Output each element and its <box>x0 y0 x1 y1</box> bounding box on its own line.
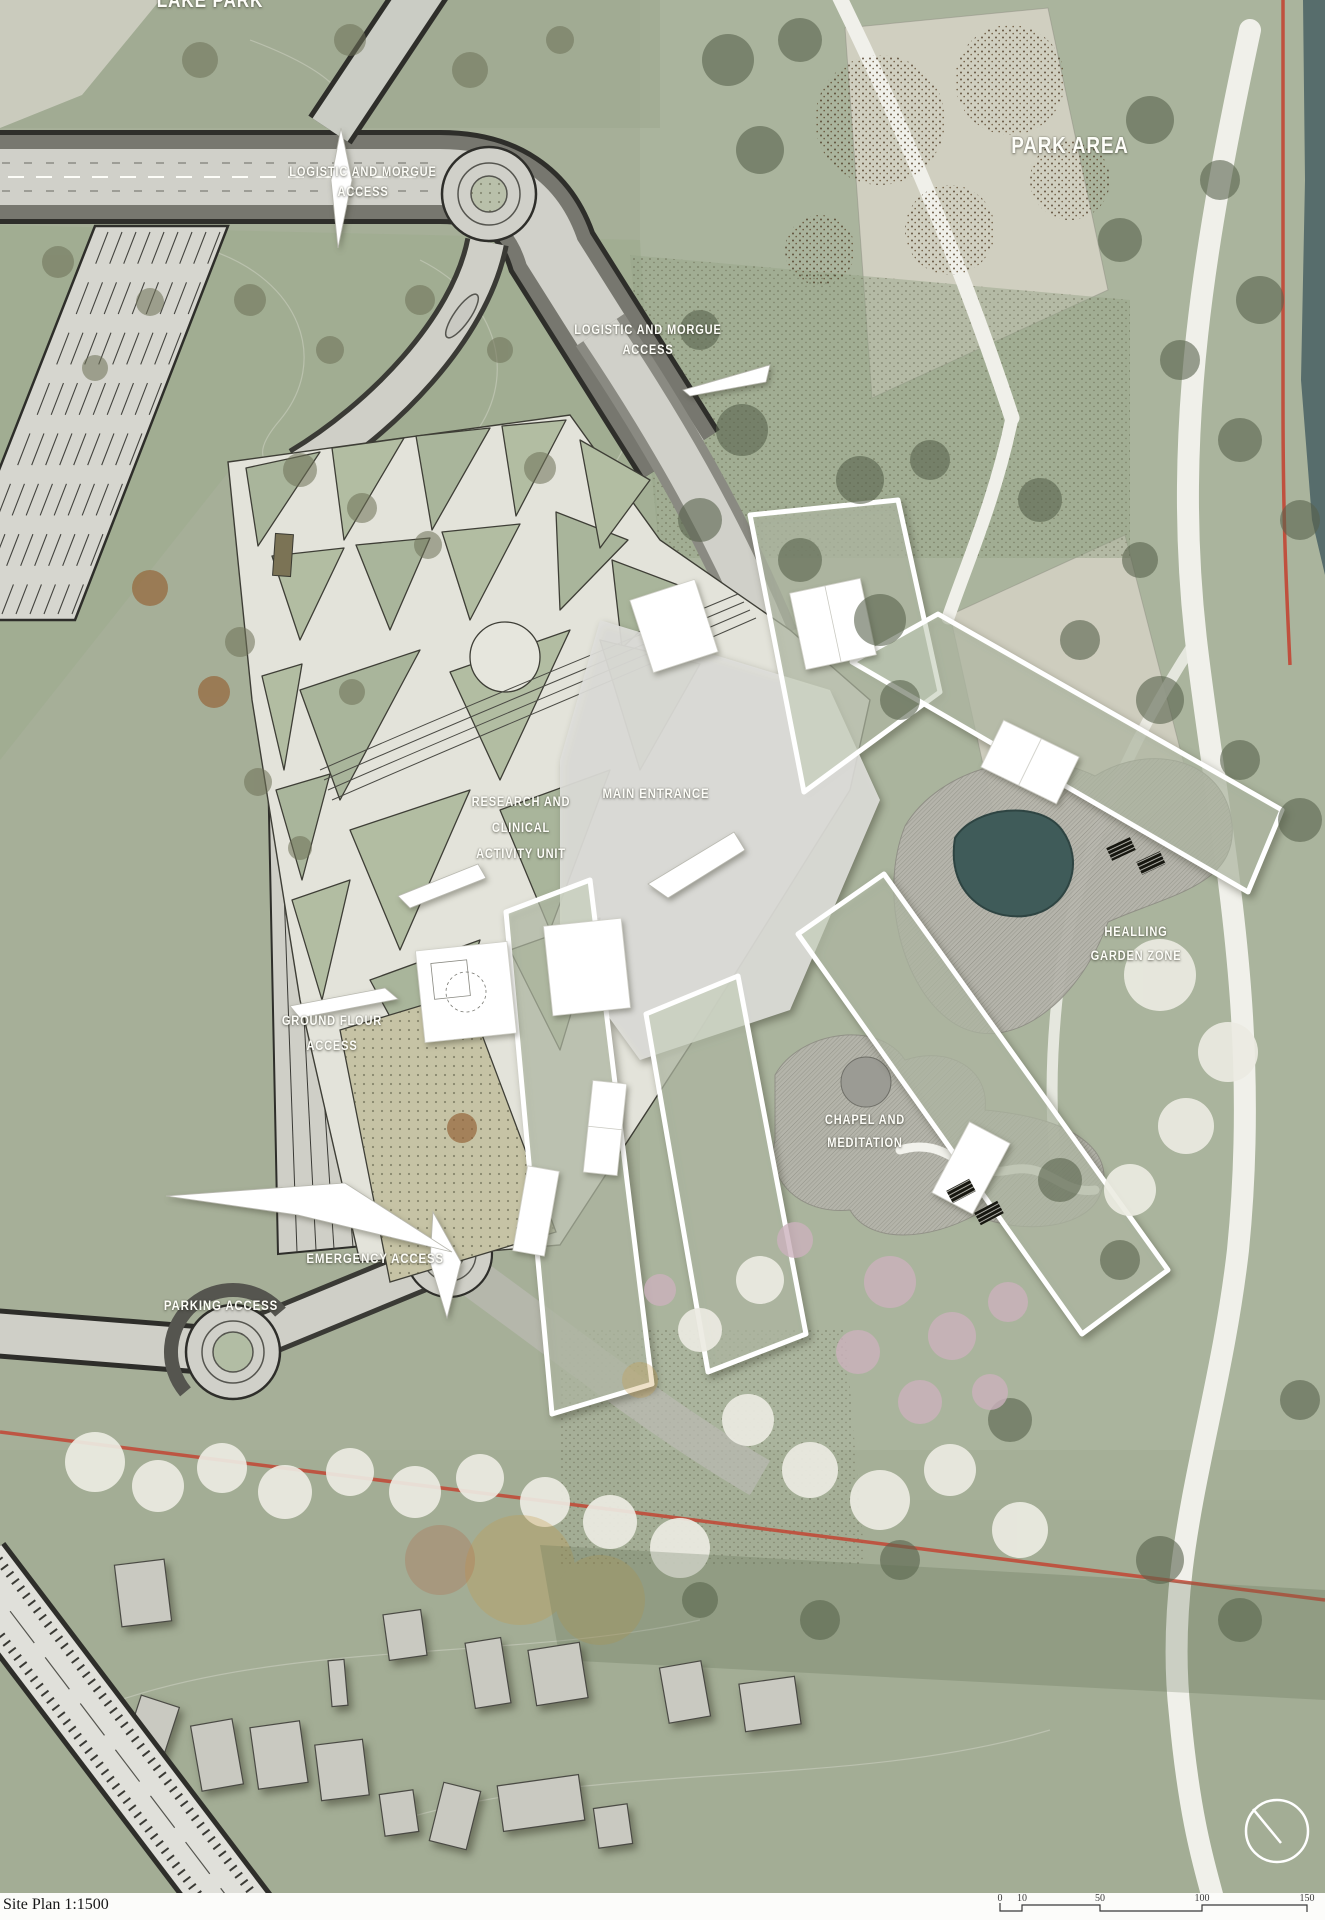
scale-tick-10: 10 <box>1017 1893 1027 1904</box>
label-healing-garden: HEALLING GARDEN ZONE <box>1075 920 1198 968</box>
chapel-roof <box>841 1057 891 1107</box>
circular-plaza <box>470 622 540 692</box>
garden-monument <box>273 533 294 576</box>
scale-tick-150: 150 <box>1300 1893 1315 1904</box>
label-parking-access: PARKING ACCESS <box>155 1295 286 1315</box>
label-chapel: CHAPEL AND MEDITATION <box>804 1108 927 1154</box>
label-logistic-access-east: LOGISTIC AND MORGUE ACCESS <box>570 320 726 359</box>
label-corner-park: LAKE PARK <box>128 0 292 16</box>
label-research-unit: RESEARCH AND CLINICAL ACTIVITY UNIT <box>460 789 583 867</box>
label-park-area: PARK AREA <box>1009 129 1132 162</box>
scale-tick-50: 50 <box>1095 1893 1105 1904</box>
label-logistic-access-north: LOGISTIC AND MORGUE ACCESS <box>285 162 441 201</box>
scale-tick-0: 0 <box>998 1893 1003 1904</box>
label-emergency-access: EMERGENCY ACCESS <box>306 1248 437 1268</box>
label-main-entrance: MAIN ENTRANCE <box>590 783 721 803</box>
footer-strip <box>0 1893 1325 1920</box>
plan-title: Site Plan 1:1500 <box>3 1896 109 1914</box>
scale-tick-100: 100 <box>1195 1893 1210 1904</box>
site-plan-canvas: LAKE PARK LOGISTIC AND MORGUE ACCESS PAR… <box>0 0 1325 1920</box>
label-ground-floor-access: GROUND FLOUR ACCESS <box>271 1008 394 1058</box>
roundabout-north <box>442 147 536 241</box>
